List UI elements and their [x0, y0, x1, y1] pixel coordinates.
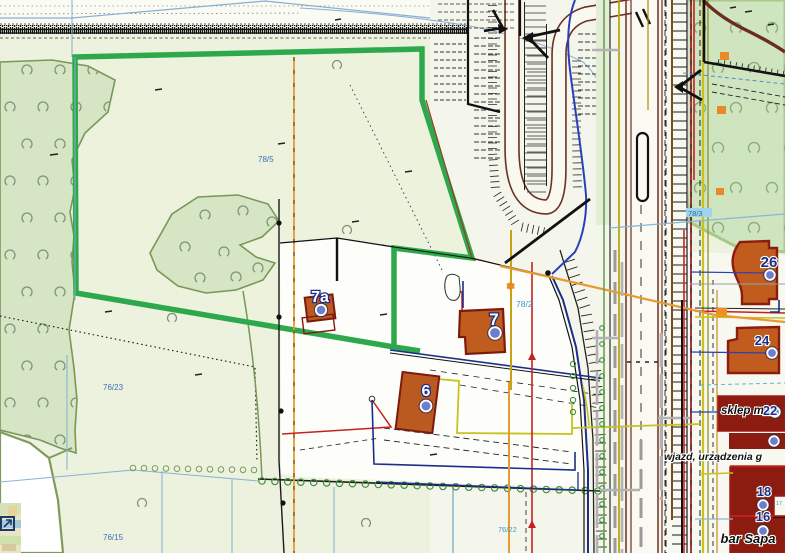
- svg-text:76/15: 76/15: [103, 533, 124, 542]
- svg-text:24: 24: [755, 333, 770, 348]
- svg-text:76/22: 76/22: [498, 525, 517, 534]
- svg-text:sklep m: sklep m: [721, 405, 764, 417]
- svg-text:78/5: 78/5: [258, 155, 274, 164]
- svg-text:16: 16: [756, 509, 770, 524]
- svg-text:26: 26: [761, 254, 778, 271]
- svg-text:76/23: 76/23: [103, 383, 124, 392]
- svg-text:18: 18: [757, 484, 771, 499]
- svg-text:17: 17: [776, 501, 782, 507]
- svg-text:6: 6: [422, 383, 431, 400]
- svg-text:7a: 7a: [311, 289, 329, 306]
- svg-text:78/2: 78/2: [516, 299, 533, 309]
- svg-text:bar Sapa: bar Sapa: [721, 531, 776, 546]
- svg-text:22: 22: [763, 403, 777, 418]
- svg-text:78/3: 78/3: [688, 209, 703, 218]
- svg-text:wjazd, urządzenia g: wjazd, urządzenia g: [664, 451, 763, 463]
- svg-text:✽: ✽: [506, 281, 515, 293]
- svg-text:7: 7: [489, 310, 498, 329]
